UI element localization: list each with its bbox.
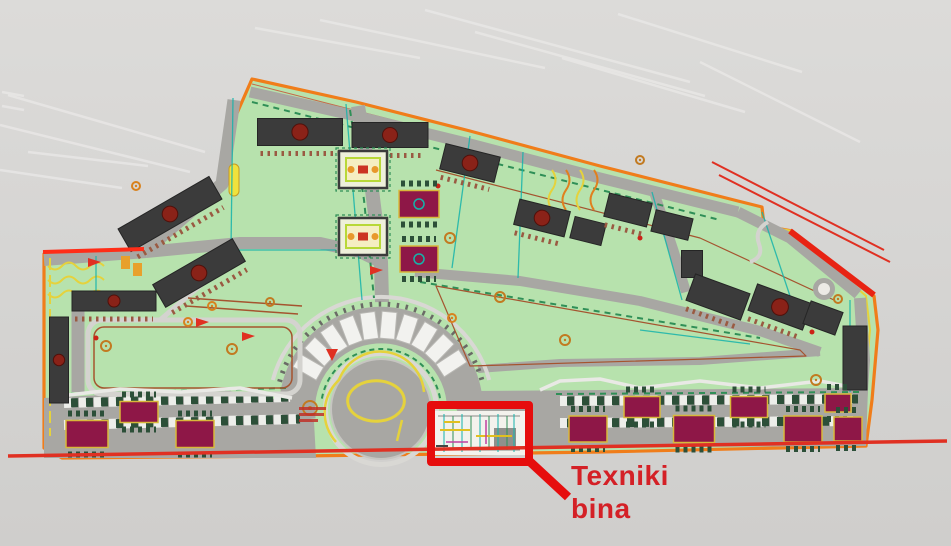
technical-building-block [494, 428, 516, 448]
detail-building [336, 215, 390, 258]
red-mark [358, 166, 368, 174]
red-dot [810, 330, 815, 335]
ghost-line [475, 32, 705, 96]
detail-building [336, 148, 390, 191]
building-footprint [400, 246, 438, 272]
tree [499, 296, 501, 298]
ghost-line [0, 170, 122, 188]
orange-mark [348, 233, 355, 240]
tree [105, 345, 107, 347]
building-core [383, 128, 398, 143]
annotation-line-2: bina [571, 492, 669, 525]
ghost-line [28, 152, 148, 166]
leader-line [527, 459, 568, 497]
site-plan-drawing [0, 0, 951, 546]
small-annotation-text [299, 419, 318, 422]
residential-building [843, 326, 867, 390]
orange-mark [372, 233, 379, 240]
annotation-label: Texniki bina [571, 459, 669, 525]
building-core [53, 354, 64, 365]
building-footprint [784, 416, 822, 442]
building-footprint [674, 416, 715, 443]
building-core [108, 295, 120, 307]
manhole [451, 317, 453, 319]
manhole [211, 305, 213, 307]
tree [564, 339, 566, 341]
yellow-marker [229, 164, 239, 196]
residential-building [50, 317, 69, 403]
small-annotation-text [299, 413, 324, 416]
small-annotation-text [299, 407, 326, 410]
tree [449, 237, 451, 239]
building-footprint [731, 397, 768, 418]
screenshot-canvas: Texniki bina [0, 0, 951, 546]
ghost-line [255, 28, 420, 58]
ghost-line [8, 95, 205, 152]
building-footprint [682, 251, 703, 278]
manhole [135, 185, 137, 187]
roundabout-plaza [331, 359, 431, 459]
annotation-line-1: Texniki [571, 459, 669, 492]
orange-marker [121, 256, 130, 269]
building-footprint [176, 421, 214, 448]
tree [837, 298, 839, 300]
ghost-line [2, 106, 24, 110]
orange-mark [372, 166, 379, 173]
red-dot [94, 336, 99, 341]
tree [815, 379, 817, 381]
parking-stall [380, 311, 397, 339]
building-footprint [834, 417, 862, 441]
ghost-line [562, 58, 745, 112]
building-footprint [66, 421, 108, 448]
parking-stall [360, 311, 379, 340]
parking-stalls [380, 311, 397, 339]
tree [231, 348, 233, 350]
building-footprint [399, 191, 439, 218]
building-footprint [569, 416, 607, 442]
orange-marker [133, 263, 142, 276]
parking-stalls [360, 311, 379, 340]
ghost-line [700, 62, 860, 142]
ghost-line [0, 125, 190, 172]
ghost-line [320, 20, 545, 68]
building-core [292, 124, 308, 140]
ghost-line [425, 10, 690, 82]
manhole [187, 321, 189, 323]
building-footprint [624, 397, 660, 418]
red-dot [638, 236, 643, 241]
building-footprint [120, 402, 158, 423]
small-roundabout [816, 281, 833, 298]
residential-building [682, 251, 703, 278]
tree [639, 159, 641, 161]
orange-mark [348, 166, 355, 173]
ghost-line [618, 14, 802, 72]
tree [269, 301, 271, 303]
red-mark [358, 233, 368, 241]
building-footprint [843, 326, 867, 390]
